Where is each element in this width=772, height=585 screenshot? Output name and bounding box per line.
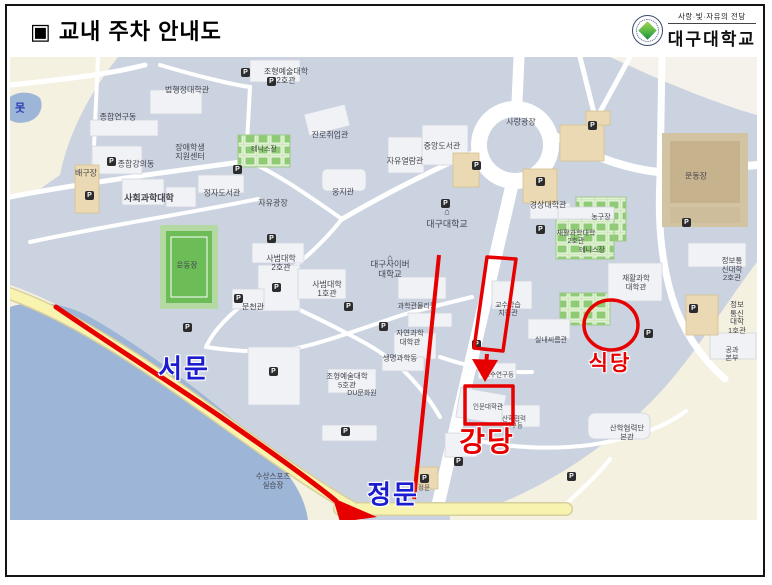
gate-label: 정문 [367, 475, 419, 512]
map-label: 농구장 [591, 214, 610, 222]
parking-icon: P [420, 474, 429, 483]
parking-icon: P [267, 77, 276, 86]
map-label: 중앙도서관 [424, 141, 461, 150]
map-label: 정보통신대학 1호관 [727, 301, 747, 336]
map-label: 인문대학관 [473, 403, 503, 410]
map-label: 테니스장 [251, 146, 277, 154]
parking-icon: P [183, 323, 192, 332]
parking-icon: P [682, 218, 691, 227]
map-label: 못 [15, 103, 25, 116]
parking-icon: P [85, 191, 94, 200]
map-label: 산학협력단 본관 [610, 424, 645, 441]
page-title: ▣ 교내 주차 안내도 [30, 14, 222, 46]
logo-tagline: 사랑·빛·자유의 전당 [678, 11, 746, 22]
map-label: 교수학습 지원관 [495, 302, 521, 318]
parking-icon: P [689, 304, 698, 313]
parking-icon: P [269, 367, 278, 376]
map-label: 정문 [418, 484, 430, 491]
parking-icon: P [472, 161, 481, 170]
map-label: 자유광장 [258, 198, 287, 207]
map-label: 대구대학교 [426, 219, 467, 229]
map-label: 장애학생 지원센터 [175, 143, 204, 161]
parking-icon: P [341, 427, 350, 436]
university-seal-icon [632, 15, 663, 46]
map-label: 경상대학관 [530, 200, 567, 209]
map-label: 대구사이버 대학교 [370, 260, 409, 280]
parking-icon: P [441, 199, 450, 208]
map-label: 재활과학 대학관 [622, 274, 650, 291]
parking-icon: P [234, 294, 243, 303]
map-label: 공과 본부 [726, 347, 739, 363]
destination-label: 식당 [589, 347, 632, 377]
map-label: 운동장 [685, 171, 707, 180]
map-label: 자연과학 대학관 [396, 329, 424, 346]
logo-text: 사랑·빛·자유의 전당 대구대학교 [668, 11, 756, 50]
parking-icon: P [472, 340, 481, 349]
campus-marker-icon: ⌂ [444, 208, 449, 217]
map-label: 재활과학대학 2호관 [557, 230, 596, 246]
map-label: 테니스장 [579, 247, 605, 255]
map-label: 문천관 [242, 302, 264, 311]
parking-icon: P [107, 157, 116, 166]
parking-icon: P [379, 322, 388, 331]
parking-icon: P [241, 68, 250, 77]
slide: ▣ 교내 주차 안내도 사랑·빛·자유의 전당 대구대학교 [0, 0, 772, 585]
logo-university-name: 대구대학교 [668, 25, 756, 50]
map-label: 생명과학동 [383, 355, 418, 364]
parking-icon: P [233, 165, 242, 174]
parking-icon: P [267, 234, 276, 243]
map-label: 수상스포츠 실습장 [256, 472, 291, 489]
parking-icon: P [272, 283, 281, 292]
map-label: 종합연구동 [100, 112, 137, 121]
map-label: 웅지관 [332, 187, 354, 196]
destination-label: 강당 [459, 420, 515, 460]
map-label: 사범대학 1호관 [312, 280, 341, 298]
university-logo: 사랑·빛·자유의 전당 대구대학교 [632, 11, 756, 50]
gate-label: 서문 [158, 349, 210, 386]
parking-icon: P [536, 225, 545, 234]
parking-icon: P [344, 302, 353, 311]
map-label: 배구장 [75, 168, 97, 177]
map-label: 교수연구동 [484, 371, 514, 378]
map-label: 정보통신대학 2호관 [720, 257, 745, 283]
map-label: 진로취업관 [312, 130, 349, 139]
map-label: 실내씨름관 [535, 337, 567, 345]
logo-divider [668, 23, 756, 24]
map-label: 자유열람관 [387, 156, 424, 165]
parking-icon: P [536, 177, 545, 186]
map-label: 과학관물리동 [398, 303, 437, 311]
map-label: 사회과학대학 [124, 193, 174, 203]
parking-icon: P [567, 472, 576, 481]
map-label: 법행정대학관 [165, 85, 209, 94]
map-label: DU문화원 [347, 390, 376, 398]
campus-map: 못종합연구동법행정대학관조형예술대학 2호관장애학생 지원센터종합강의동배구장사… [10, 57, 757, 520]
map-label: 종합강의동 [118, 159, 155, 168]
map-label: 사랑광장 [506, 117, 535, 126]
map-label: 조형예술대학 5호관 [326, 372, 367, 389]
parking-icon: P [588, 121, 597, 130]
map-label: 정자도서관 [204, 188, 241, 197]
map-label: 운동장 [177, 262, 198, 271]
parking-icon: P [644, 329, 653, 338]
map-label: 사범대학 2호관 [266, 254, 295, 272]
